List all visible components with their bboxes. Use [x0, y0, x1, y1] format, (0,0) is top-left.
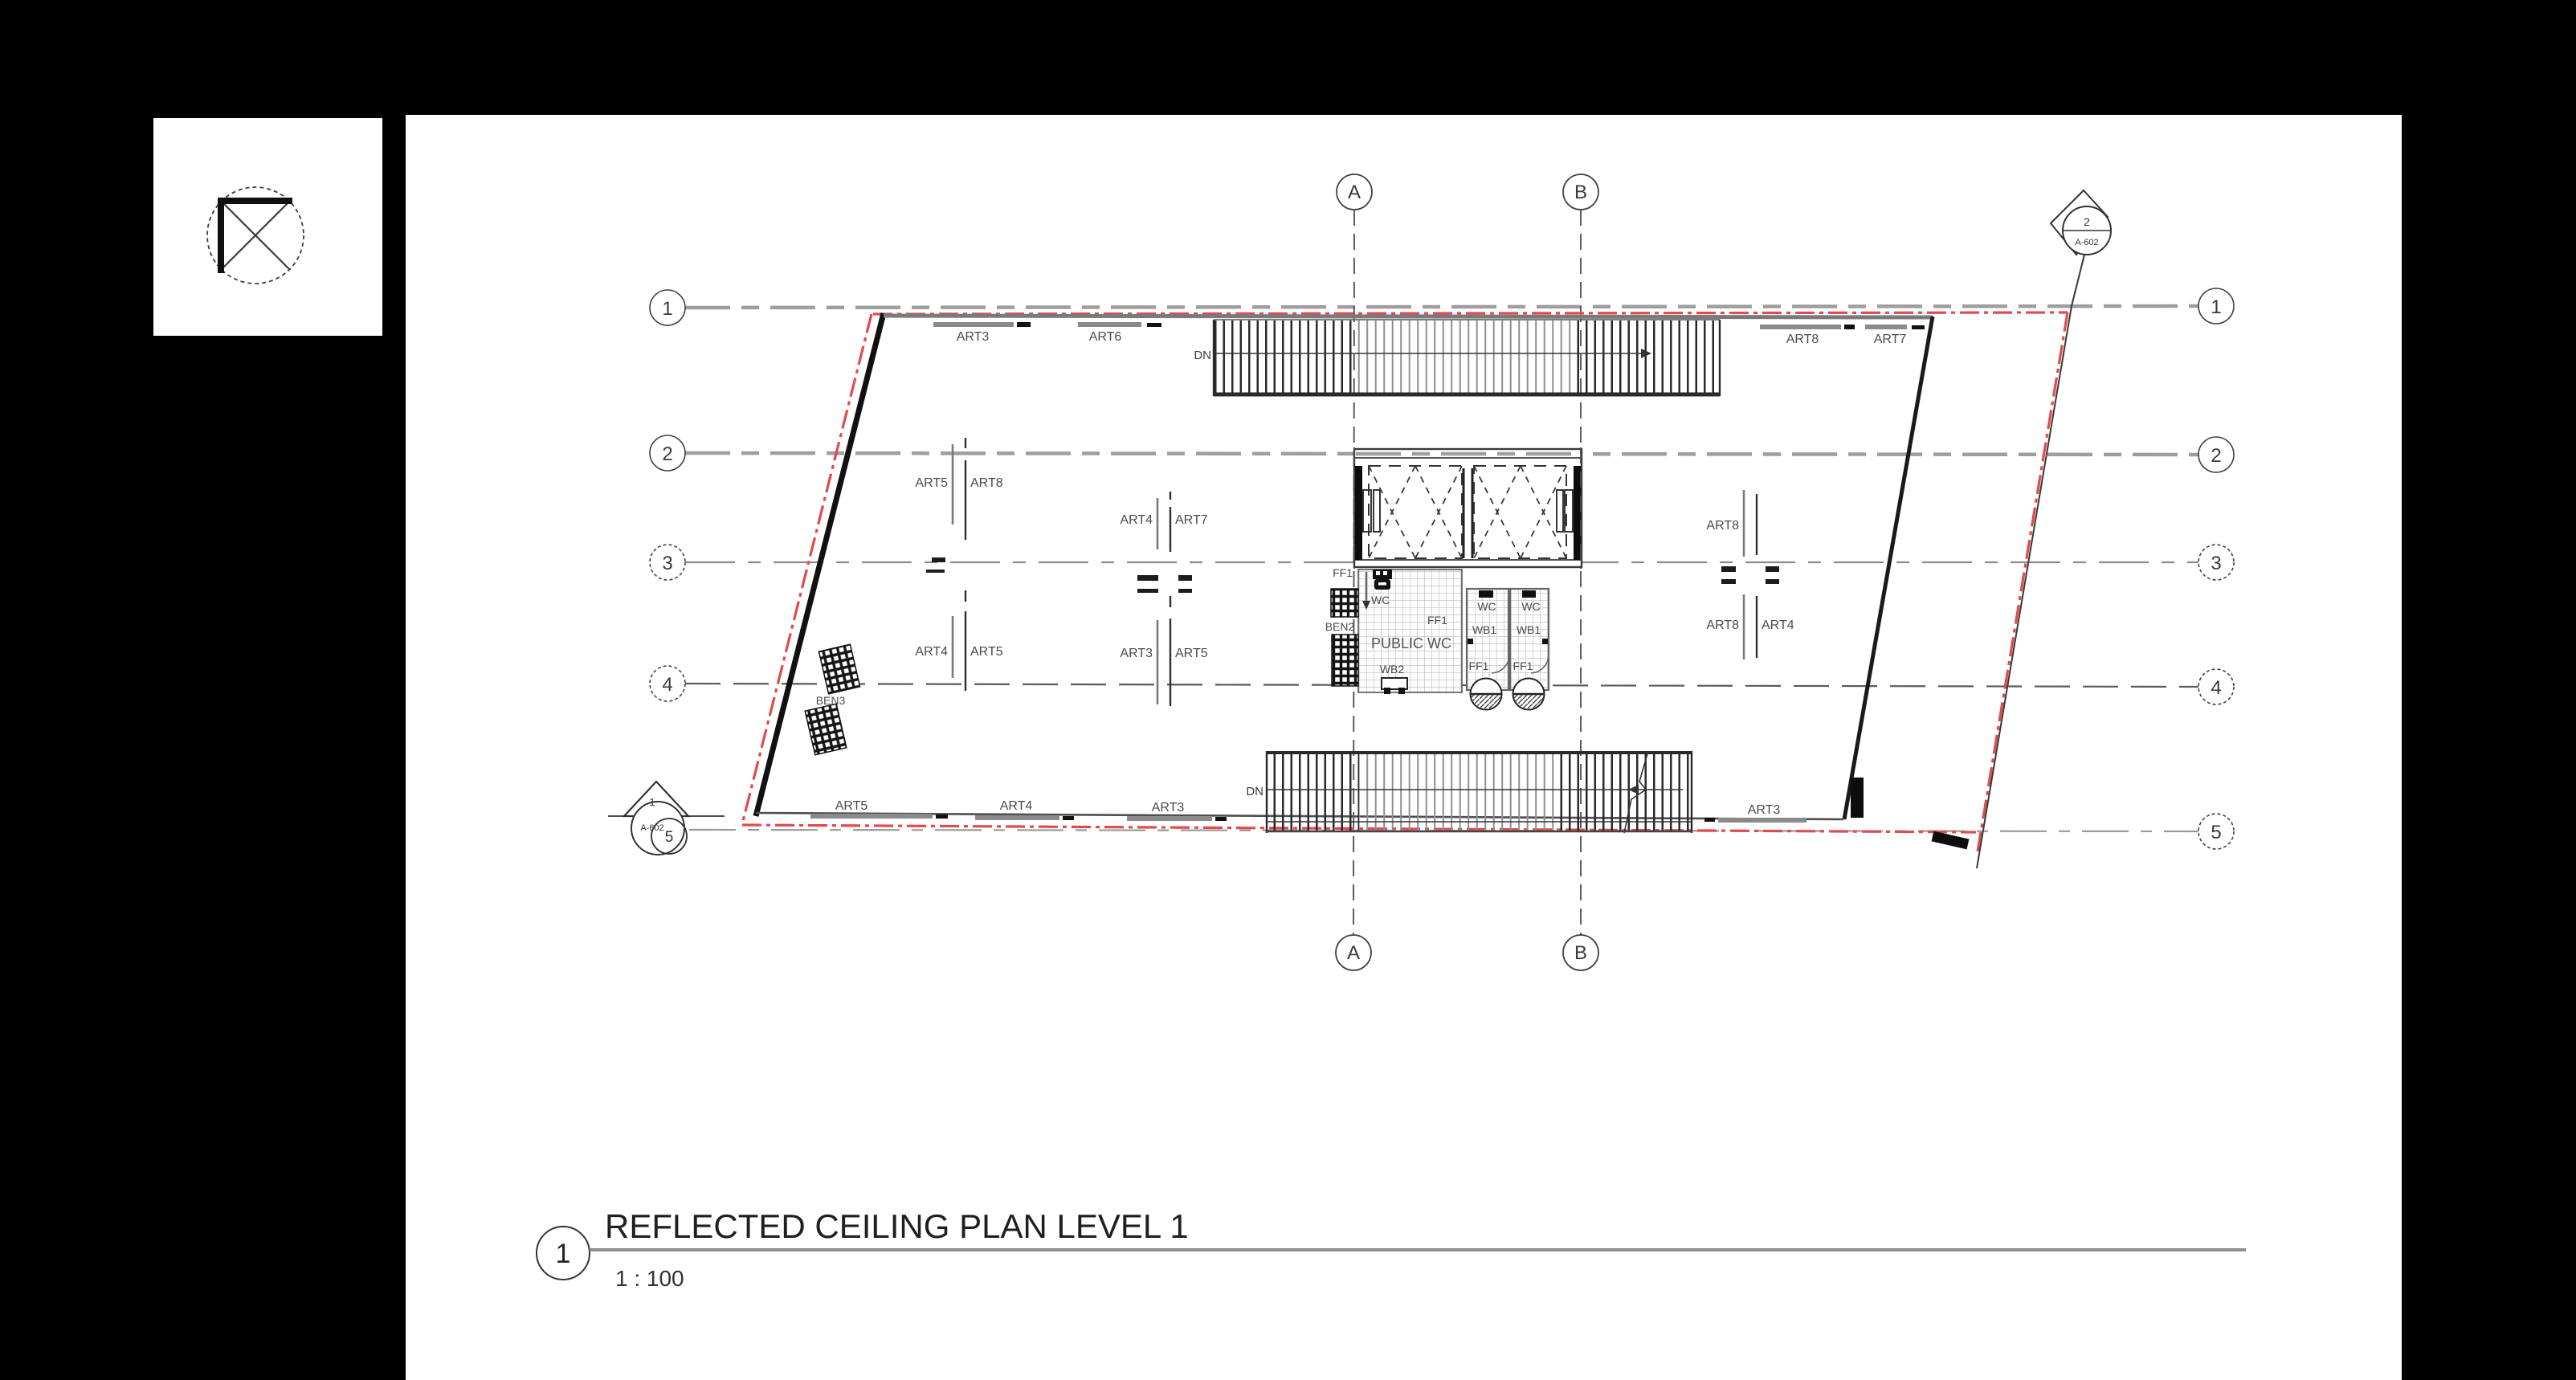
svg-text:2: 2: [662, 443, 672, 465]
svg-text:ART4: ART4: [1000, 799, 1033, 813]
svg-text:ART5: ART5: [970, 645, 1003, 659]
svg-text:1: 1: [2211, 296, 2221, 318]
svg-text:B: B: [1574, 942, 1587, 964]
svg-text:REFLECTED CEILING PLAN LEVEL 1: REFLECTED CEILING PLAN LEVEL 1: [605, 1207, 1189, 1245]
svg-text:A: A: [1348, 182, 1361, 203]
svg-text:WB2: WB2: [1380, 663, 1405, 676]
svg-text:DN: DN: [1194, 349, 1211, 362]
svg-text:2: 2: [2084, 215, 2090, 228]
svg-text:FF1: FF1: [1469, 659, 1489, 672]
svg-text:ART4: ART4: [1762, 619, 1794, 632]
svg-text:ART5: ART5: [915, 476, 948, 490]
svg-text:ART8: ART8: [1786, 333, 1819, 346]
svg-text:ART4: ART4: [1120, 513, 1153, 527]
svg-text:3: 3: [662, 553, 672, 574]
svg-text:ART7: ART7: [1175, 513, 1208, 527]
svg-text:ART8: ART8: [1706, 619, 1739, 632]
svg-text:1 : 100: 1 : 100: [615, 1266, 684, 1291]
svg-text:WC: WC: [1477, 600, 1496, 613]
svg-text:ART8: ART8: [970, 476, 1003, 490]
svg-text:ART3: ART3: [1748, 803, 1781, 817]
svg-text:WB1: WB1: [1517, 623, 1541, 636]
svg-text:ART4: ART4: [915, 645, 948, 659]
svg-text:B: B: [1574, 182, 1587, 203]
svg-text:ART5: ART5: [835, 799, 868, 813]
svg-text:1: 1: [556, 1239, 571, 1269]
svg-text:WB1: WB1: [1472, 623, 1497, 636]
svg-text:PUBLIC WC: PUBLIC WC: [1371, 635, 1451, 651]
svg-text:ART8: ART8: [1706, 519, 1739, 533]
svg-text:ART5: ART5: [1175, 647, 1208, 660]
svg-text:1: 1: [662, 298, 672, 320]
svg-text:4: 4: [2211, 677, 2221, 699]
svg-text:A-602: A-602: [2075, 238, 2098, 247]
svg-text:5: 5: [665, 829, 674, 846]
svg-text:FF1: FF1: [1513, 659, 1533, 672]
svg-text:A-602: A-602: [640, 823, 663, 833]
svg-text:1: 1: [649, 796, 655, 808]
svg-text:ART3: ART3: [1152, 801, 1185, 815]
svg-text:A: A: [1347, 942, 1360, 964]
svg-text:WC: WC: [1371, 594, 1390, 606]
svg-text:FF1: FF1: [1333, 566, 1353, 579]
svg-text:DN: DN: [1246, 785, 1264, 798]
svg-text:ART7: ART7: [1874, 333, 1907, 346]
svg-text:FF1: FF1: [1427, 614, 1447, 627]
svg-text:ART3: ART3: [957, 330, 990, 344]
svg-text:3: 3: [2211, 553, 2221, 574]
svg-text:WC: WC: [1521, 600, 1540, 613]
svg-text:ART6: ART6: [1089, 330, 1122, 344]
svg-text:BEN2: BEN2: [1325, 620, 1355, 633]
svg-text:5: 5: [2211, 822, 2221, 843]
svg-text:4: 4: [662, 674, 672, 696]
svg-text:ART3: ART3: [1120, 647, 1153, 660]
svg-text:2: 2: [2211, 445, 2221, 467]
